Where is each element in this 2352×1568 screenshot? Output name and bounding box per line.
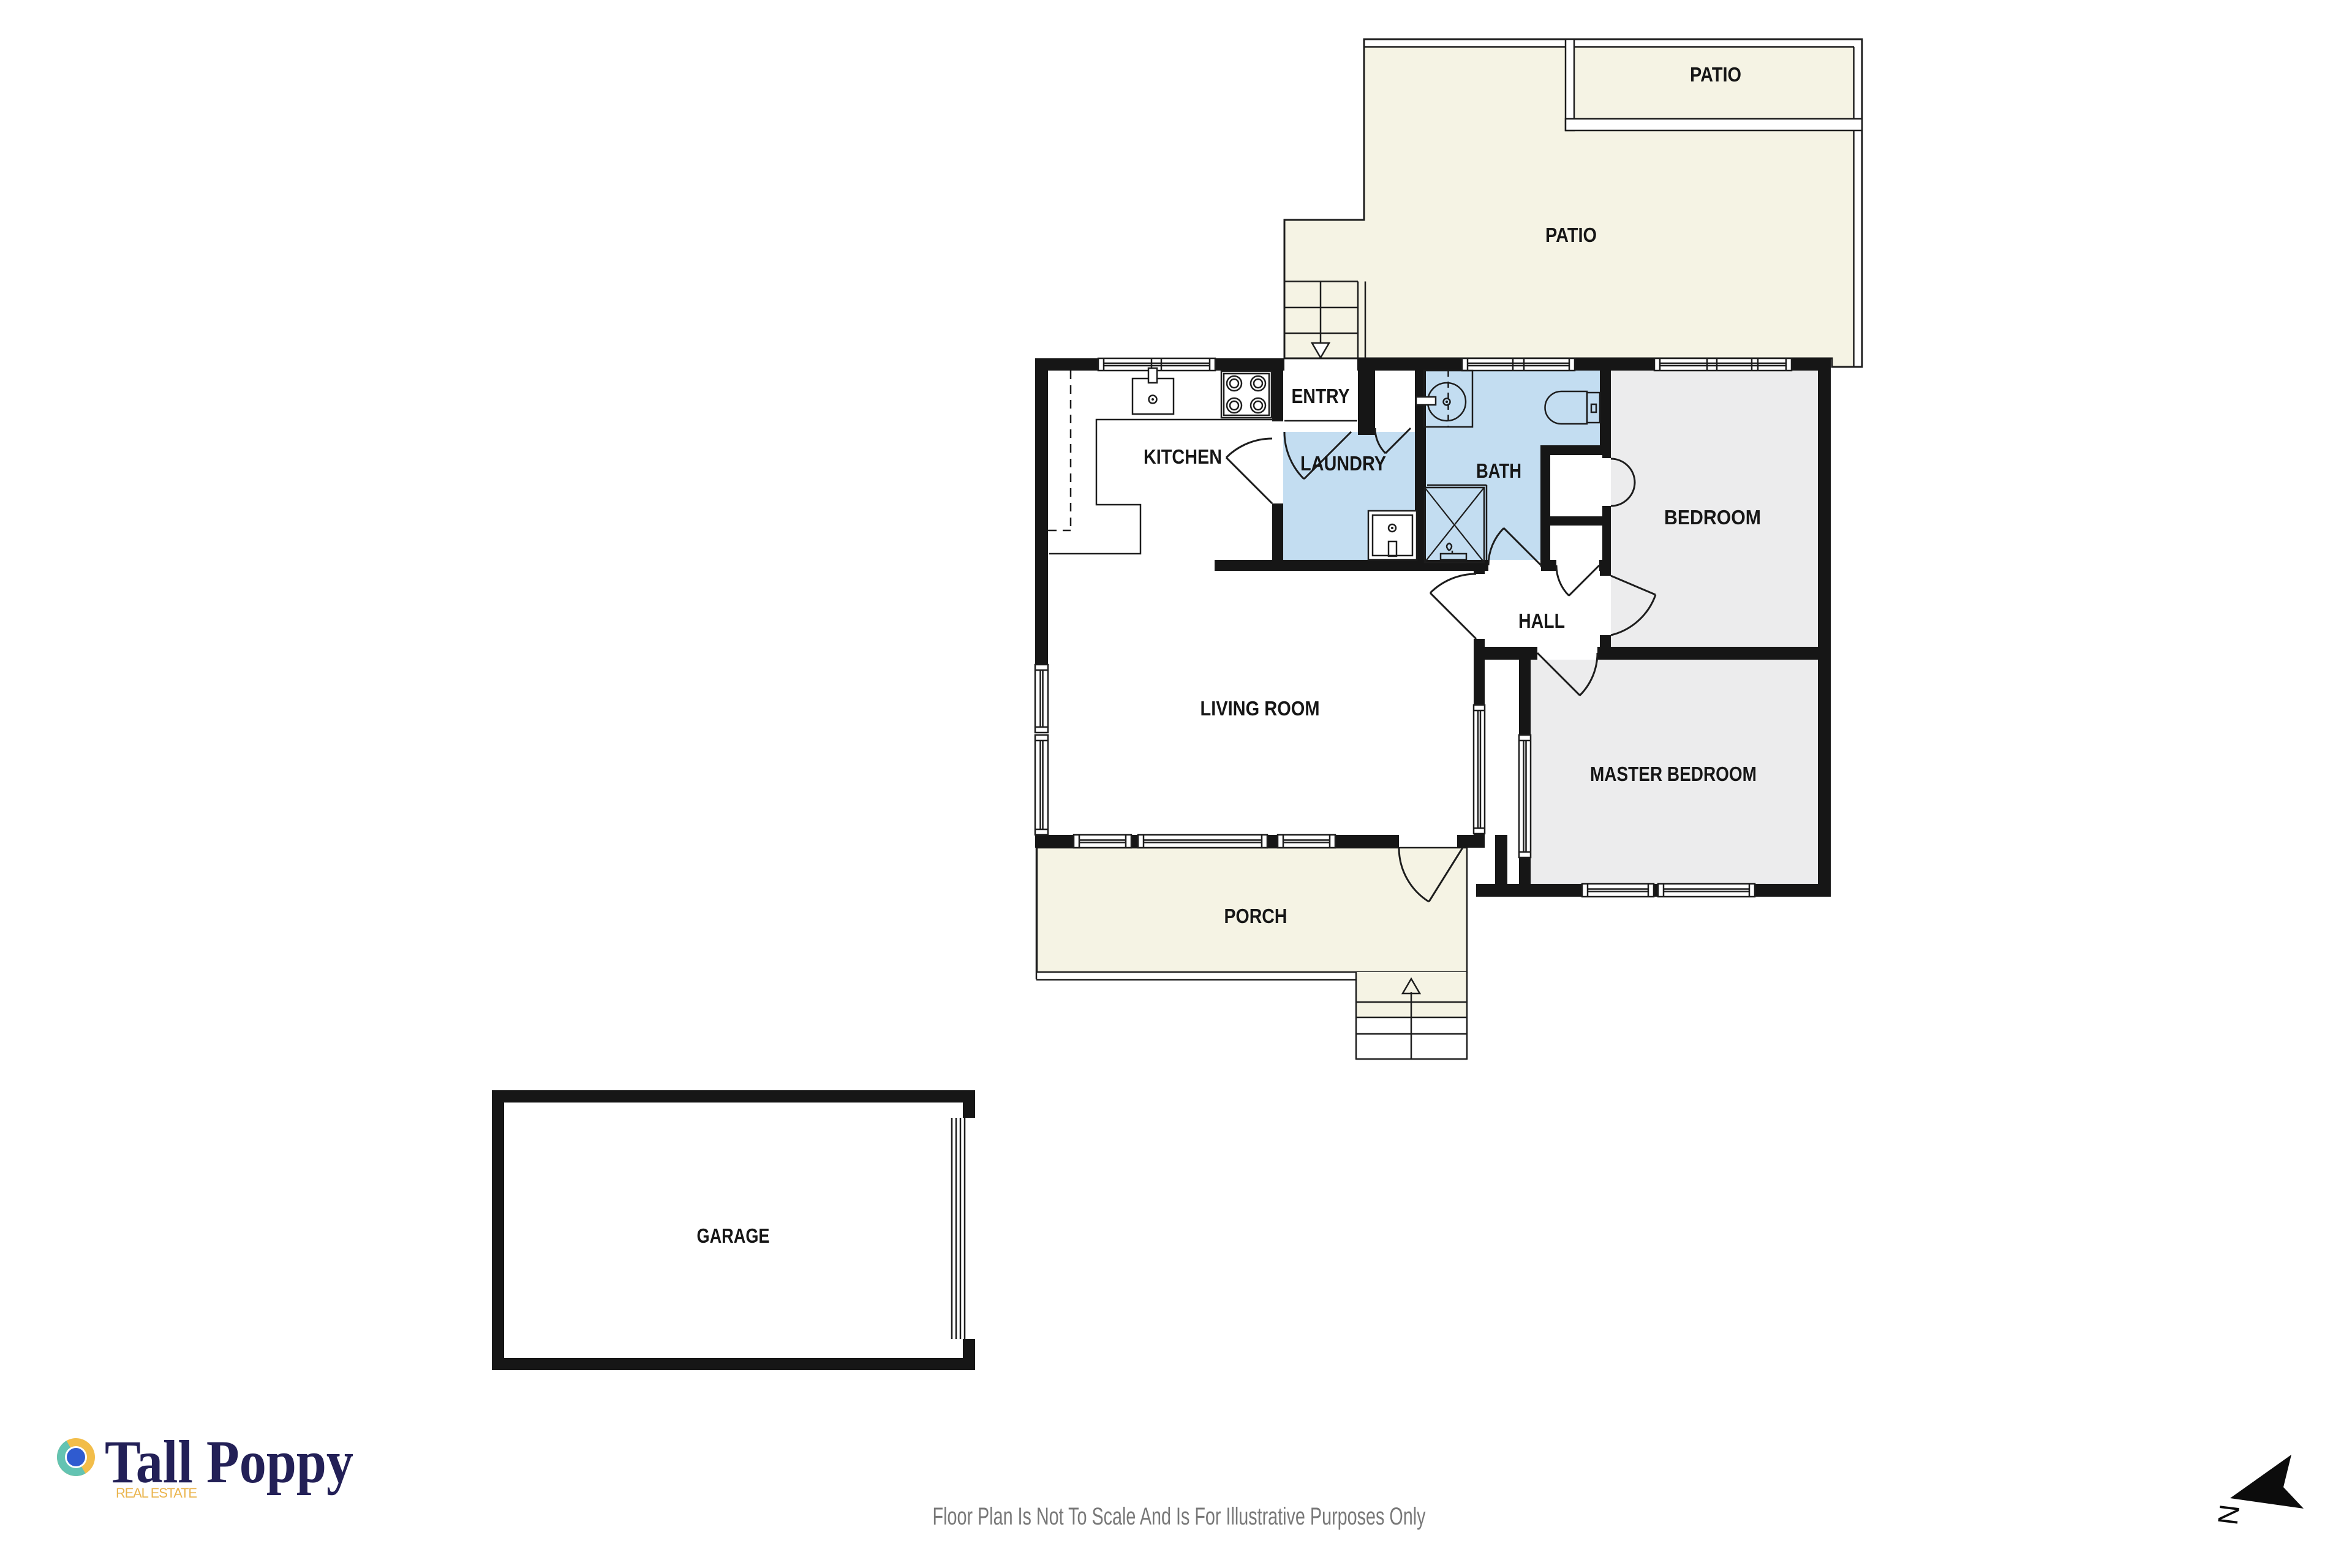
svg-text:BEDROOM: BEDROOM [1664,506,1761,529]
svg-text:Floor Plan Is Not To Scale And: Floor Plan Is Not To Scale And Is For Il… [933,1503,1426,1530]
svg-text:PORCH: PORCH [1224,905,1287,927]
svg-text:ENTRY: ENTRY [1292,385,1350,407]
svg-text:LAUNDRY: LAUNDRY [1300,452,1386,475]
svg-text:PATIO: PATIO [1690,63,1741,86]
svg-text:PATIO: PATIO [1545,224,1597,246]
svg-text:N: N [2212,1502,2246,1526]
svg-text:GARAGE: GARAGE [697,1224,770,1247]
svg-text:LIVING ROOM: LIVING ROOM [1200,697,1320,720]
svg-text:HALL: HALL [1518,609,1565,632]
svg-text:MASTER BEDROOM: MASTER BEDROOM [1590,763,1757,785]
svg-text:REAL ESTATE: REAL ESTATE [116,1485,197,1501]
svg-text:KITCHEN: KITCHEN [1144,445,1222,468]
svg-text:BATH: BATH [1476,459,1521,482]
